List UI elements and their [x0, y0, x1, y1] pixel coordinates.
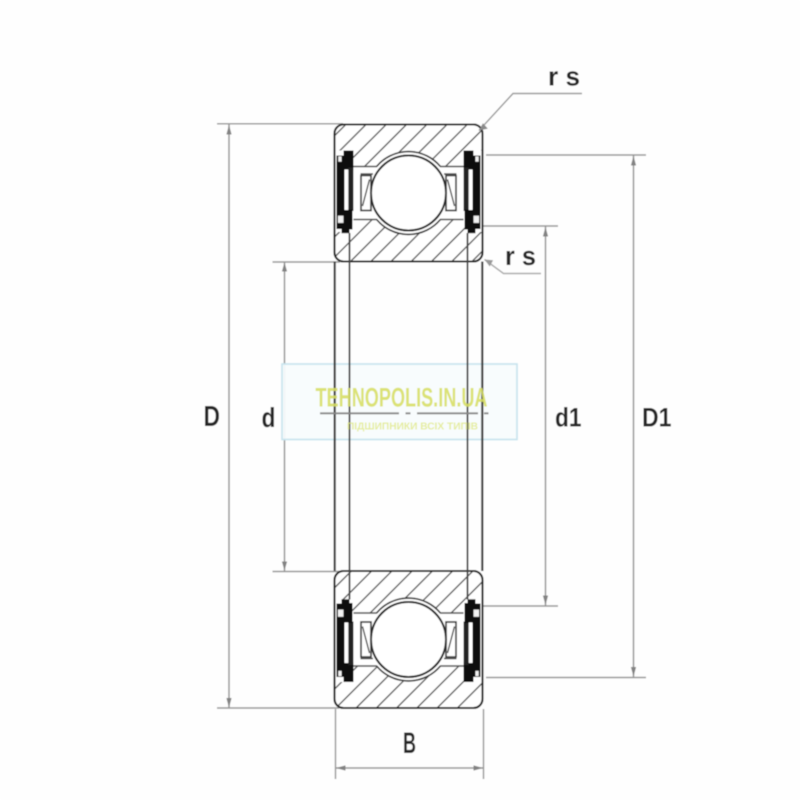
- svg-text:d1: d1: [555, 403, 582, 433]
- svg-text:d: d: [262, 402, 276, 433]
- svg-text:D1: D1: [642, 403, 672, 433]
- svg-text:TEHNOPOLIS.IN.UA: TEHNOPOLIS.IN.UA: [316, 383, 488, 413]
- svg-text:D: D: [204, 401, 221, 433]
- svg-text:B: B: [403, 727, 416, 760]
- svg-text:ПІДШИПНИКИ ВСІХ ТИПІВ: ПІДШИПНИКИ ВСІХ ТИПІВ: [347, 422, 478, 433]
- svg-text:r s: r s: [548, 62, 580, 92]
- svg-text:r s: r s: [505, 241, 536, 271]
